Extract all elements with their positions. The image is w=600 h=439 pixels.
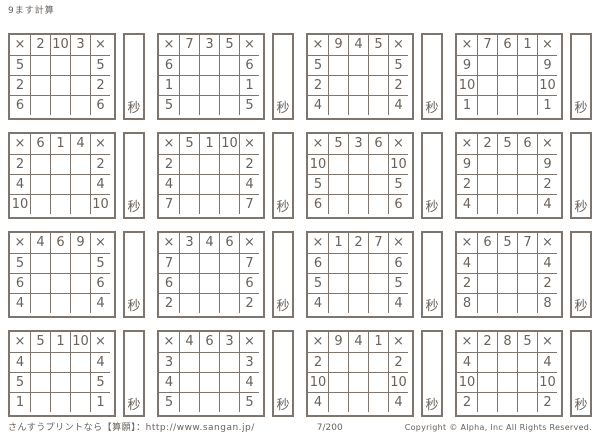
multiplicand-cell: 6 [90,95,110,115]
operator-cell: × [239,35,259,55]
multiplicand-cell: 9 [537,55,557,75]
multiplicand-cell: 2 [90,154,110,174]
multiplication-grid: ×614×22441010 [8,132,116,219]
operator-cell: × [159,35,179,55]
answer-cell [368,75,388,95]
calc-grid-unit: ×5110×445511 秒 [8,330,145,417]
answer-cell [477,392,497,412]
answer-cell [50,55,70,75]
answer-cell [70,392,90,412]
multiplicand-cell: 6 [239,55,259,75]
calc-grid-unit: ×469×556644 秒 [8,231,145,318]
multiplier-cell: 6 [30,134,50,154]
seconds-label: 秒 [276,196,289,215]
multiplicand-cell: 4 [10,293,30,313]
worksheet-page: 9ます計算 ×2103×552266 秒 ×735×661155 秒 ×945×… [0,0,600,439]
answer-cell [517,55,537,75]
multiplicand-cell: 9 [457,55,477,75]
answer-cell [497,372,517,392]
multiplicand-cell: 9 [457,154,477,174]
operator-cell: × [457,233,477,253]
multiplicand-cell: 5 [10,55,30,75]
answer-cell [368,392,388,412]
multiplier-cell: 4 [70,134,90,154]
answer-cell [497,253,517,273]
multiplicand-cell: 10 [308,154,328,174]
multiplicand-cell: 7 [159,253,179,273]
multiplier-cell: 4 [348,35,368,55]
multiplier-cell: 5 [328,134,348,154]
seconds-label: 秒 [574,295,587,314]
calc-grid-unit: ×127×665544 秒 [306,231,443,318]
calc-grid-unit: ×285×44101022 秒 [455,330,592,417]
multiplication-grid: ×5110×445511 [8,330,116,417]
seconds-label: 秒 [276,394,289,413]
multiplier-cell: 3 [348,134,368,154]
answer-cell [328,55,348,75]
answer-cell [497,75,517,95]
seconds-label: 秒 [127,394,140,413]
multiplicand-cell: 2 [537,392,557,412]
seconds-label: 秒 [425,97,438,116]
multiplicand-cell: 6 [388,194,408,214]
answer-cell [70,174,90,194]
multiplier-cell: 1 [328,233,348,253]
multiplicand-cell: 2 [308,75,328,95]
answer-cell [199,174,219,194]
answer-cell [348,95,368,115]
operator-cell: × [159,233,179,253]
seconds-box: 秒 [421,330,443,417]
multiplicand-cell: 1 [239,75,259,95]
answer-cell [477,293,497,313]
answer-cell [179,293,199,313]
multiplicand-cell: 2 [239,154,259,174]
answer-cell [70,154,90,174]
answer-cell [199,273,219,293]
calc-grid-unit: ×941×22101044 秒 [306,330,443,417]
multiplication-grid: ×5110×224477 [157,132,265,219]
multiplier-cell: 10 [219,134,239,154]
multiplicand-cell: 5 [10,253,30,273]
answer-cell [70,273,90,293]
answer-cell [517,253,537,273]
answer-cell [497,55,517,75]
multiplicand-cell: 6 [308,194,328,214]
seconds-label: 秒 [574,394,587,413]
multiplicand-cell: 4 [388,293,408,313]
answer-cell [219,392,239,412]
operator-cell: × [537,332,557,352]
answer-cell [70,95,90,115]
multiplier-cell: 2 [477,134,497,154]
operator-cell: × [457,35,477,55]
answer-cell [219,194,239,214]
answer-cell [348,55,368,75]
multiplicand-cell: 9 [537,154,557,174]
multiplicand-cell: 1 [159,75,179,95]
answer-cell [517,293,537,313]
calc-grid-unit: ×5110×224477 秒 [157,132,294,219]
multiplicand-cell: 2 [457,174,477,194]
answer-cell [179,95,199,115]
answer-cell [30,154,50,174]
answer-cell [179,75,199,95]
multiplier-cell: 2 [348,233,368,253]
answer-cell [517,372,537,392]
multiplicand-cell: 5 [90,55,110,75]
answer-cell [199,392,219,412]
multiplier-cell: 6 [50,233,70,253]
seconds-box: 秒 [421,132,443,219]
multiplication-grid: ×941×22101044 [306,330,414,417]
multiplicand-cell: 10 [537,75,557,95]
multiplier-cell: 3 [199,35,219,55]
operator-cell: × [537,233,557,253]
calc-grid-unit: ×346×776622 秒 [157,231,294,318]
multiplicand-cell: 4 [239,174,259,194]
seconds-box: 秒 [272,231,294,318]
answer-cell [348,273,368,293]
answer-cell [497,352,517,372]
answer-cell [50,174,70,194]
answer-cell [50,194,70,214]
calc-grid-unit: ×463×334455 秒 [157,330,294,417]
seconds-box: 秒 [570,33,592,120]
answer-cell [368,253,388,273]
answer-cell [70,55,90,75]
answer-cell [219,352,239,372]
answer-cell [477,174,497,194]
multiplicand-cell: 10 [537,372,557,392]
multiplier-cell: 1 [199,134,219,154]
multiplicand-cell: 7 [239,253,259,273]
multiplier-cell: 8 [497,332,517,352]
multiplicand-cell: 4 [239,372,259,392]
answer-cell [517,95,537,115]
multiplicand-cell: 5 [239,392,259,412]
multiplicand-cell: 5 [388,174,408,194]
answer-cell [368,194,388,214]
answer-cell [368,174,388,194]
answer-cell [70,352,90,372]
answer-cell [328,154,348,174]
multiplier-cell: 7 [179,35,199,55]
multiplicand-cell: 3 [239,352,259,372]
seconds-box: 秒 [272,33,294,120]
seconds-label: 秒 [574,196,587,215]
multiplicand-cell: 5 [308,174,328,194]
answer-cell [50,154,70,174]
seconds-label: 秒 [127,196,140,215]
multiplicand-cell: 4 [10,174,30,194]
seconds-box: 秒 [570,132,592,219]
operator-cell: × [537,35,557,55]
multiplication-grid: ×346×776622 [157,231,265,318]
answer-cell [219,95,239,115]
answer-cell [368,55,388,75]
answer-cell [50,95,70,115]
multiplicand-cell: 2 [90,75,110,95]
answer-cell [328,352,348,372]
multiplier-cell: 7 [368,233,388,253]
operator-cell: × [10,35,30,55]
operator-cell: × [90,134,110,154]
answer-cell [497,194,517,214]
multiplicand-cell: 4 [537,194,557,214]
answer-cell [199,194,219,214]
answer-cell [219,253,239,273]
operator-cell: × [388,332,408,352]
answer-cell [348,253,368,273]
multiplicand-cell: 3 [159,352,179,372]
multiplication-grid: ×463×334455 [157,330,265,417]
answer-cell [328,273,348,293]
multiplicand-cell: 4 [537,253,557,273]
multiplicand-cell: 4 [308,392,328,412]
multiplicand-cell: 10 [10,194,30,214]
answer-cell [328,194,348,214]
answer-cell [497,293,517,313]
answer-cell [30,194,50,214]
multiplication-grid: ×127×665544 [306,231,414,318]
seconds-box: 秒 [570,330,592,417]
multiplicand-cell: 5 [388,273,408,293]
answer-cell [70,253,90,273]
answer-cell [348,293,368,313]
multiplier-cell: 3 [179,233,199,253]
footer-site-credit: さんすうプリントなら【算願】：http://www.sangan.jp/ [8,420,255,433]
answer-cell [70,75,90,95]
multiplicand-cell: 2 [457,392,477,412]
multiplication-grid: ×469×556644 [8,231,116,318]
multiplier-cell: 5 [368,35,388,55]
multiplier-cell: 1 [50,332,70,352]
multiplier-cell: 7 [517,233,537,253]
answer-cell [199,293,219,313]
answer-cell [477,372,497,392]
multiplicand-cell: 2 [537,273,557,293]
multiplicand-cell: 1 [90,392,110,412]
multiplier-cell: 1 [50,134,70,154]
answer-cell [70,372,90,392]
answer-cell [179,352,199,372]
seconds-label: 秒 [127,97,140,116]
multiplicand-cell: 2 [388,352,408,372]
multiplier-cell: 4 [348,332,368,352]
multiplicand-cell: 6 [308,253,328,273]
operator-cell: × [90,35,110,55]
multiplier-cell: 10 [50,35,70,55]
multiplier-cell: 10 [70,332,90,352]
operator-cell: × [388,134,408,154]
multiplicand-cell: 1 [537,95,557,115]
answer-cell [50,352,70,372]
answer-cell [30,372,50,392]
answer-cell [497,392,517,412]
operator-cell: × [388,233,408,253]
multiplication-grid: ×735×661155 [157,33,265,120]
multiplicand-cell: 4 [308,293,328,313]
answer-cell [30,174,50,194]
multiplier-cell: 5 [219,35,239,55]
multiplicand-cell: 2 [10,75,30,95]
answer-cell [368,293,388,313]
answer-cell [328,392,348,412]
multiplier-cell: 5 [179,134,199,154]
answer-cell [219,174,239,194]
multiplicand-cell: 4 [388,392,408,412]
multiplicand-cell: 4 [457,194,477,214]
operator-cell: × [90,332,110,352]
multiplicand-cell: 4 [308,95,328,115]
multiplicand-cell: 5 [10,372,30,392]
answer-cell [199,154,219,174]
multiplicand-cell: 5 [388,55,408,75]
answer-cell [199,75,219,95]
seconds-box: 秒 [570,231,592,318]
multiplication-grid: ×761×99101011 [455,33,563,120]
calc-grid-unit: ×256×992244 秒 [455,132,592,219]
operator-cell: × [90,233,110,253]
operator-cell: × [308,35,328,55]
multiplicand-cell: 4 [159,174,179,194]
multiplicand-cell: 4 [10,352,30,372]
multiplicand-cell: 10 [457,372,477,392]
answer-cell [477,154,497,174]
operator-cell: × [457,332,477,352]
answer-cell [348,154,368,174]
multiplication-grid: ×657×442288 [455,231,563,318]
multiplicand-cell: 2 [239,293,259,313]
copyright-notice: Copyright © Alpha, Inc All Rights Reserv… [405,423,592,432]
answer-cell [328,253,348,273]
answer-cell [477,75,497,95]
multiplier-cell: 4 [199,233,219,253]
multiplier-cell: 6 [477,233,497,253]
calc-grid-unit: ×761×99101011 秒 [455,33,592,120]
multiplicand-cell: 10 [388,372,408,392]
multiplier-cell: 7 [477,35,497,55]
answer-cell [477,253,497,273]
multiplicand-cell: 4 [90,293,110,313]
operator-cell: × [308,134,328,154]
answer-cell [199,372,219,392]
multiplicand-cell: 6 [159,273,179,293]
answer-cell [497,174,517,194]
multiplicand-cell: 4 [90,174,110,194]
answer-cell [517,194,537,214]
multiplicand-cell: 8 [457,293,477,313]
seconds-label: 秒 [276,97,289,116]
multiplicand-cell: 10 [90,194,110,214]
seconds-box: 秒 [123,330,145,417]
multiplicand-cell: 4 [388,95,408,115]
multiplication-grid: ×2103×552266 [8,33,116,120]
answer-cell [219,75,239,95]
operator-cell: × [239,332,259,352]
answer-cell [328,174,348,194]
page-number: 7/200 [317,423,343,433]
answer-cell [219,273,239,293]
multiplier-cell: 9 [70,233,90,253]
answer-cell [368,273,388,293]
answer-cell [50,75,70,95]
multiplication-grid: ×945×552244 [306,33,414,120]
answer-cell [219,293,239,313]
calc-grid-unit: ×2103×552266 秒 [8,33,145,120]
answer-cell [477,273,497,293]
multiplier-cell: 5 [497,233,517,253]
answer-cell [497,154,517,174]
answer-cell [179,273,199,293]
footer: さんすうプリントなら【算願】：http://www.sangan.jp/ 7/2… [8,420,592,433]
answer-cell [368,372,388,392]
seconds-box: 秒 [123,231,145,318]
answer-cell [30,95,50,115]
multiplier-cell: 4 [179,332,199,352]
answer-cell [30,392,50,412]
multiplier-cell: 1 [368,332,388,352]
multiplicand-cell: 2 [159,293,179,313]
multiplier-cell: 6 [368,134,388,154]
answer-cell [517,392,537,412]
grids-area: ×2103×552266 秒 ×735×661155 秒 ×945×552244… [8,33,592,417]
answer-cell [477,194,497,214]
operator-cell: × [388,35,408,55]
answer-cell [70,194,90,214]
seconds-box: 秒 [421,33,443,120]
multiplicand-cell: 10 [457,75,477,95]
answer-cell [70,293,90,313]
answer-cell [179,392,199,412]
answer-cell [348,392,368,412]
seconds-label: 秒 [425,196,438,215]
operator-cell: × [239,233,259,253]
multiplier-cell: 1 [517,35,537,55]
calc-grid-unit: ×735×661155 秒 [157,33,294,120]
multiplicand-cell: 5 [239,95,259,115]
answer-cell [179,154,199,174]
multiplicand-cell: 5 [90,253,110,273]
multiplicand-cell: 4 [537,352,557,372]
answer-cell [199,55,219,75]
answer-cell [179,253,199,273]
calc-grid-unit: ×536×10105566 秒 [306,132,443,219]
answer-cell [30,253,50,273]
answer-cell [50,253,70,273]
answer-cell [179,174,199,194]
multiplicand-cell: 5 [159,392,179,412]
multiplicand-cell: 5 [90,372,110,392]
answer-cell [517,75,537,95]
answer-cell [199,253,219,273]
multiplier-cell: 9 [328,35,348,55]
answer-cell [179,194,199,214]
answer-cell [348,372,368,392]
answer-cell [30,75,50,95]
answer-cell [477,352,497,372]
answer-cell [497,95,517,115]
multiplicand-cell: 10 [308,372,328,392]
operator-cell: × [10,332,30,352]
answer-cell [368,352,388,372]
multiplicand-cell: 6 [388,253,408,273]
answer-cell [50,273,70,293]
multiplier-cell: 6 [497,35,517,55]
multiplicand-cell: 7 [159,194,179,214]
answer-cell [199,95,219,115]
